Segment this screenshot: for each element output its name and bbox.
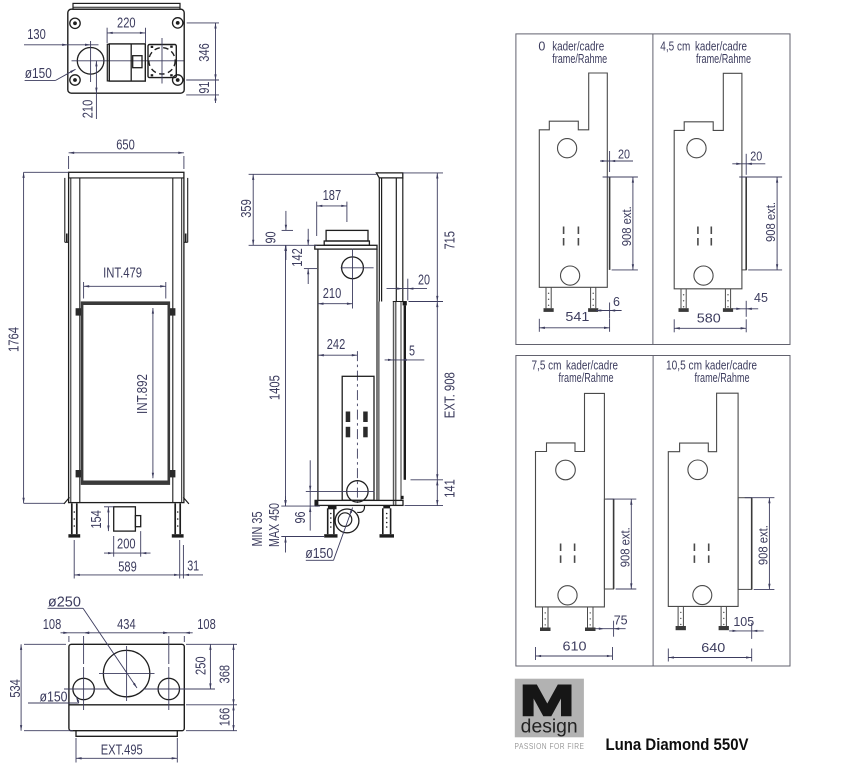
svg-text:105: 105 bbox=[733, 615, 754, 629]
svg-text:141: 141 bbox=[443, 479, 459, 498]
svg-text:45: 45 bbox=[754, 291, 768, 305]
svg-text:715: 715 bbox=[443, 231, 459, 250]
svg-text:MIN 35: MIN 35 bbox=[250, 512, 266, 547]
svg-text:ø150: ø150 bbox=[305, 546, 333, 562]
svg-text:frame/Rahme: frame/Rahme bbox=[696, 52, 751, 66]
svg-text:610: 610 bbox=[563, 640, 587, 654]
svg-text:154: 154 bbox=[89, 510, 105, 529]
svg-text:31: 31 bbox=[187, 559, 199, 575]
svg-text:650: 650 bbox=[116, 138, 135, 154]
svg-text:200: 200 bbox=[117, 537, 136, 553]
svg-text:96: 96 bbox=[293, 512, 309, 524]
svg-text:210: 210 bbox=[323, 286, 342, 302]
svg-text:187: 187 bbox=[323, 188, 342, 204]
svg-text:541: 541 bbox=[565, 310, 589, 324]
svg-text:5: 5 bbox=[409, 344, 415, 360]
svg-text:0: 0 bbox=[538, 40, 545, 54]
svg-text:108: 108 bbox=[43, 617, 62, 633]
svg-text:346: 346 bbox=[197, 43, 213, 62]
svg-text:220: 220 bbox=[117, 16, 136, 32]
svg-text:210: 210 bbox=[81, 100, 97, 119]
svg-text:908 ext.: 908 ext. bbox=[620, 206, 634, 246]
svg-text:108: 108 bbox=[197, 617, 216, 633]
svg-text:75: 75 bbox=[614, 614, 628, 628]
svg-text:250: 250 bbox=[193, 656, 209, 675]
svg-text:frame/Rahme: frame/Rahme bbox=[552, 52, 607, 66]
svg-text:EXT. 908: EXT. 908 bbox=[443, 372, 459, 418]
svg-text:MAX 450: MAX 450 bbox=[267, 503, 283, 547]
svg-text:166: 166 bbox=[218, 708, 234, 727]
svg-text:90: 90 bbox=[264, 232, 280, 244]
svg-text:908 ext.: 908 ext. bbox=[764, 202, 778, 242]
svg-text:7,5 cm: 7,5 cm bbox=[532, 359, 562, 373]
svg-text:580: 580 bbox=[697, 312, 721, 326]
svg-text:frame/Rahme: frame/Rahme bbox=[695, 371, 750, 385]
svg-text:Luna Diamond 550V: Luna Diamond 550V bbox=[606, 736, 749, 754]
svg-text:359: 359 bbox=[239, 199, 255, 218]
svg-text:design: design bbox=[521, 717, 578, 738]
svg-text:20: 20 bbox=[418, 273, 430, 289]
svg-text:368: 368 bbox=[218, 665, 234, 684]
svg-text:534: 534 bbox=[8, 679, 24, 698]
svg-text:ø150: ø150 bbox=[25, 66, 52, 82]
svg-text:20: 20 bbox=[750, 149, 762, 163]
svg-text:1405: 1405 bbox=[268, 375, 284, 400]
svg-text:20: 20 bbox=[618, 148, 630, 162]
svg-text:908 ext.: 908 ext. bbox=[756, 525, 770, 565]
svg-text:142: 142 bbox=[290, 248, 306, 267]
svg-text:130: 130 bbox=[27, 27, 46, 43]
svg-text:908 ext.: 908 ext. bbox=[618, 527, 632, 567]
svg-text:589: 589 bbox=[118, 560, 137, 576]
svg-text:frame/Rahme: frame/Rahme bbox=[559, 371, 614, 385]
svg-text:640: 640 bbox=[701, 641, 725, 655]
svg-text:INT.892: INT.892 bbox=[135, 374, 151, 414]
svg-text:1764: 1764 bbox=[6, 327, 22, 352]
svg-text:4,5 cm: 4,5 cm bbox=[660, 40, 690, 54]
svg-text:6: 6 bbox=[613, 295, 620, 309]
svg-text:91: 91 bbox=[197, 82, 213, 94]
svg-text:INT.479: INT.479 bbox=[103, 266, 142, 282]
svg-text:EXT.495: EXT.495 bbox=[101, 743, 143, 759]
svg-text:242: 242 bbox=[327, 337, 346, 353]
svg-text:PASSION FOR FIRE: PASSION FOR FIRE bbox=[515, 742, 585, 751]
svg-text:434: 434 bbox=[117, 617, 136, 633]
